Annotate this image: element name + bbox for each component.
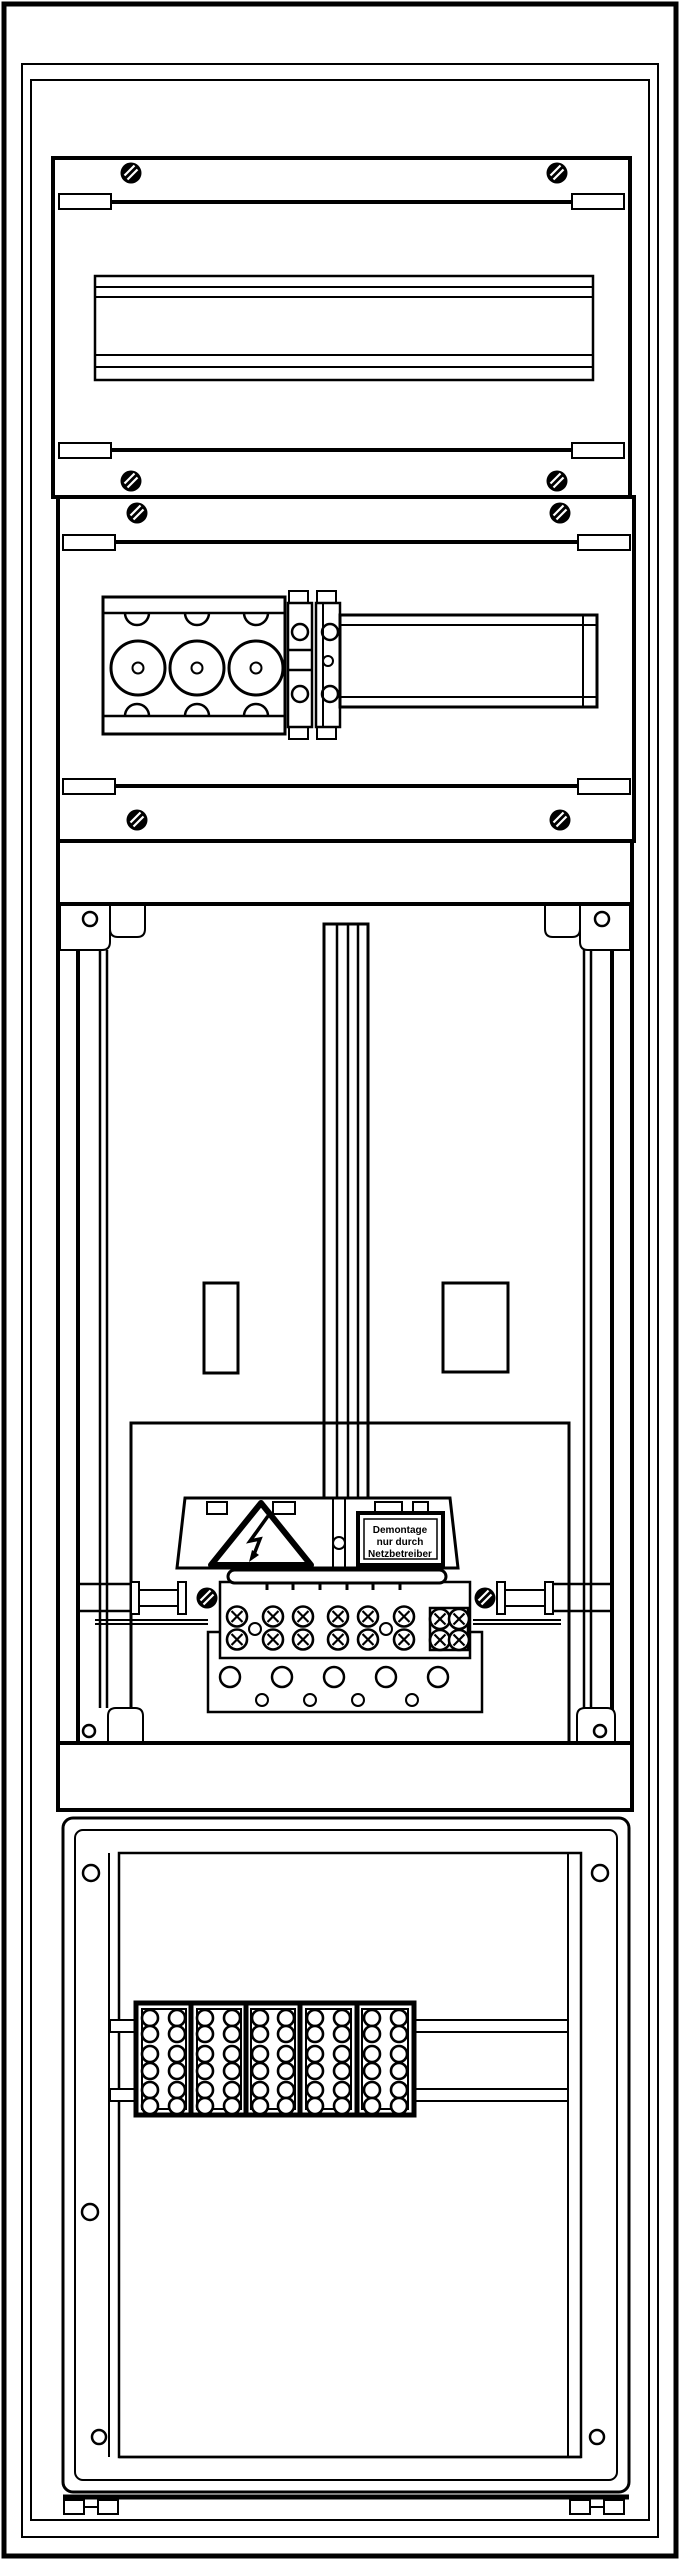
- mounting-cutout: [443, 1283, 508, 1372]
- main-terminal-block: [220, 1582, 470, 1658]
- warning-label-line2: nur durch: [377, 1537, 424, 1548]
- busbar-cover: Demontage nur durch Netzbetreiber: [177, 1498, 458, 1568]
- screw-icon: [547, 471, 568, 492]
- screw-icon: [475, 1588, 496, 1609]
- fuse-rail: [340, 615, 597, 707]
- fuse-circle: [229, 641, 283, 695]
- center-column: [324, 924, 368, 1500]
- screw-icon: [121, 163, 142, 184]
- screw-icon: [197, 1588, 218, 1609]
- warning-label: Demontage nur durch Netzbetreiber: [358, 1513, 443, 1565]
- fuse-circle: [111, 641, 165, 695]
- section-fuse-panel: [58, 497, 634, 841]
- screw-icon: [121, 471, 142, 492]
- warning-label-line1: Demontage: [373, 1525, 428, 1536]
- wall-hole: [590, 2430, 604, 2444]
- section-top-panel: [53, 158, 630, 497]
- section-connection-compartment: [63, 1818, 629, 2514]
- screw-icon: [550, 503, 571, 524]
- center-column-lower: [324, 1423, 368, 1500]
- screw-icon: [550, 810, 571, 831]
- din-rail: [95, 276, 593, 380]
- cabinet-svg: Demontage nur durch Netzbetreiber: [0, 0, 680, 2560]
- wall-hole: [82, 2204, 98, 2220]
- wall-hole: [83, 1865, 99, 1881]
- fuse-holder-block: [103, 597, 285, 734]
- warning-label-line3: Netzbetreiber: [368, 1549, 432, 1560]
- mounting-cutout: [204, 1283, 238, 1373]
- fuse-circle: [170, 641, 224, 695]
- wall-hole: [592, 1865, 608, 1881]
- four-screw-terminal: [430, 1608, 469, 1650]
- cabinet-drawing: Demontage nur durch Netzbetreiber: [0, 0, 680, 2560]
- screw-icon: [127, 503, 148, 524]
- mounting-plate: [119, 1853, 581, 2457]
- wall-hole: [92, 2430, 106, 2444]
- corner-bracket: [577, 1708, 615, 1742]
- screw-icon: [127, 810, 148, 831]
- terminal-block-row: [136, 2003, 414, 2115]
- screw-icon: [547, 163, 568, 184]
